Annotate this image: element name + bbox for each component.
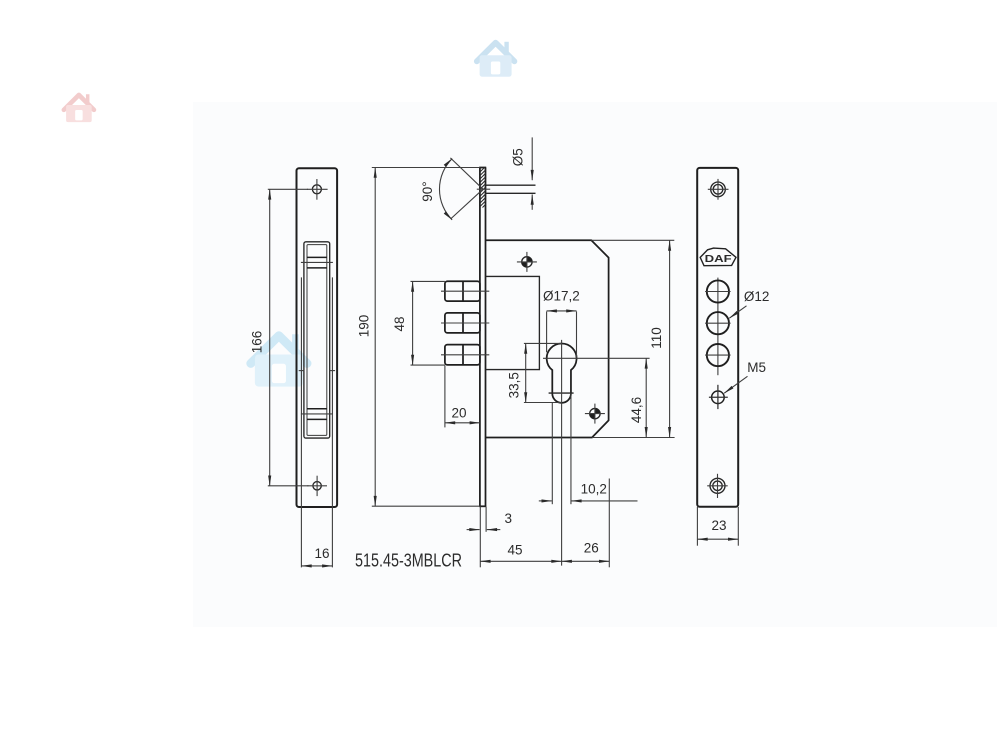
svg-text:M5: M5 [747,360,766,375]
svg-text:33,5: 33,5 [506,372,521,398]
svg-text:166: 166 [250,331,265,354]
svg-text:110: 110 [649,327,664,349]
svg-text:10,2: 10,2 [581,482,607,497]
svg-text:44,6: 44,6 [629,397,644,423]
svg-text:DAF: DAF [705,254,732,265]
svg-text:90°: 90° [420,181,435,201]
svg-text:Ø17,2: Ø17,2 [543,289,580,304]
svg-text:26: 26 [584,541,599,556]
svg-text:20: 20 [451,406,466,421]
svg-text:23: 23 [711,518,726,533]
svg-text:515.45-3MBLCR: 515.45-3MBLCR [355,550,462,571]
svg-text:16: 16 [314,546,329,561]
svg-text:190: 190 [357,315,372,338]
svg-text:48: 48 [392,316,407,331]
svg-text:Ø12: Ø12 [744,289,770,304]
svg-text:Ø5: Ø5 [511,148,526,166]
svg-text:3: 3 [504,511,512,526]
svg-text:45: 45 [507,543,522,558]
